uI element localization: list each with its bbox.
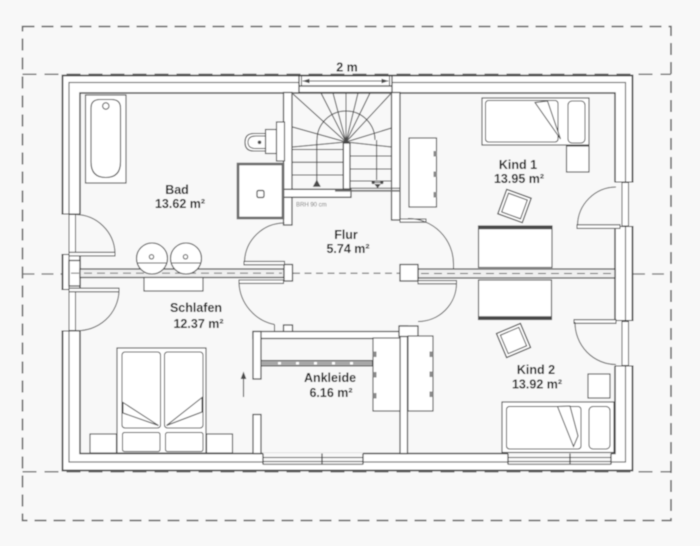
svg-text:BRH 90 cm: BRH 90 cm xyxy=(296,203,327,209)
svg-text:13.95 m²: 13.95 m² xyxy=(494,172,544,186)
svg-text:13.92 m²: 13.92 m² xyxy=(512,378,562,392)
svg-text:12.37 m²: 12.37 m² xyxy=(173,317,223,331)
svg-text:5.74 m²: 5.74 m² xyxy=(326,242,369,256)
svg-text:2 m: 2 m xyxy=(336,61,358,75)
svg-text:Flur: Flur xyxy=(334,228,358,242)
svg-text:6.16 m²: 6.16 m² xyxy=(309,386,352,400)
svg-text:Kind 1: Kind 1 xyxy=(499,158,537,172)
svg-text:Kind 2: Kind 2 xyxy=(517,363,555,377)
svg-text:Ankleide: Ankleide xyxy=(304,371,356,385)
svg-text:13.62 m²: 13.62 m² xyxy=(155,197,205,211)
svg-text:Bad: Bad xyxy=(165,183,189,197)
svg-text:Schlafen: Schlafen xyxy=(170,301,222,315)
